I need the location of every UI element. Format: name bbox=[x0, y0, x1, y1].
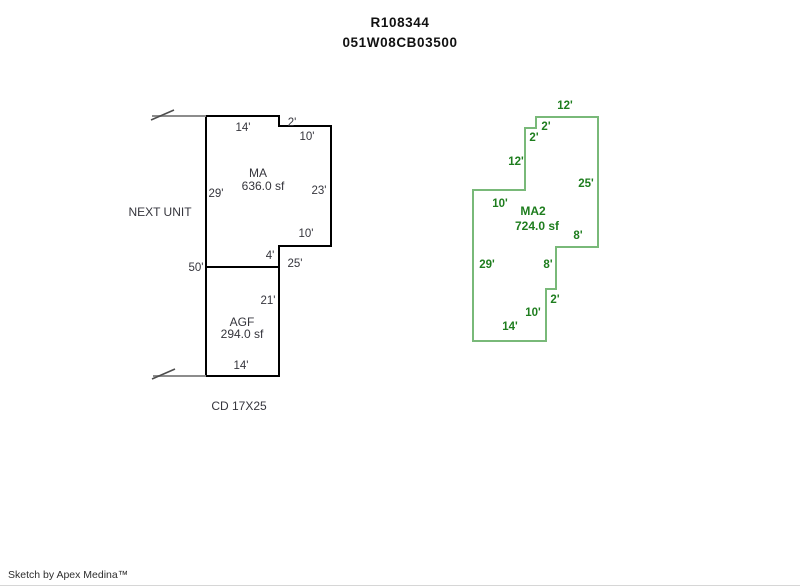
black-dimension-label: 50' bbox=[189, 262, 204, 274]
black-dimension-label: 29' bbox=[209, 188, 224, 200]
black-dimension-label: 10' bbox=[300, 131, 315, 143]
green-dimension-label: 29' bbox=[479, 259, 495, 271]
green-dimension-label: 8' bbox=[543, 259, 552, 271]
credit-line: Sketch by Apex Medina™ bbox=[8, 569, 128, 581]
area-size-ma2: 724.0 sf bbox=[515, 220, 559, 232]
green-dimension-label: 8' bbox=[573, 230, 582, 242]
green-dimension-label: 14' bbox=[502, 321, 518, 333]
black-dimension-label: 14' bbox=[234, 360, 249, 372]
green-dimension-label: 25' bbox=[578, 178, 594, 190]
green-dimension-label: 12' bbox=[557, 100, 573, 112]
next-unit-label: NEXT UNIT bbox=[128, 206, 191, 218]
green-dimension-label: 2' bbox=[529, 132, 538, 144]
bottom-arrow-tick bbox=[152, 369, 175, 379]
condition-label: CD 17X25 bbox=[211, 400, 266, 412]
green-dimension-label: 2' bbox=[550, 294, 559, 306]
black-dimension-label: 21' bbox=[261, 295, 276, 307]
sketch-page: R108344 051W08CB03500 14'2'10'29'23'10'4… bbox=[0, 0, 800, 587]
area-code-ma: MA bbox=[249, 167, 267, 179]
area-size-agf: 294.0 sf bbox=[221, 328, 264, 340]
green-dimension-label: 10' bbox=[492, 198, 508, 210]
black-dimension-label: 2' bbox=[288, 117, 297, 129]
area-size-ma: 636.0 sf bbox=[242, 180, 285, 192]
sketch-canvas bbox=[0, 0, 800, 587]
green-dimension-label: 12' bbox=[508, 156, 524, 168]
green-dimension-label: 2' bbox=[541, 121, 550, 133]
green-dimension-label: 10' bbox=[525, 307, 541, 319]
bottom-border-line bbox=[0, 585, 800, 586]
area-code-ma2: MA2 bbox=[520, 205, 545, 217]
black-dimension-label: 23' bbox=[312, 185, 327, 197]
black-dimension-label: 25' bbox=[288, 258, 303, 270]
black-dimension-label: 10' bbox=[299, 228, 314, 240]
black-dimension-label: 14' bbox=[236, 122, 251, 134]
black-dimension-label: 4' bbox=[266, 250, 275, 262]
